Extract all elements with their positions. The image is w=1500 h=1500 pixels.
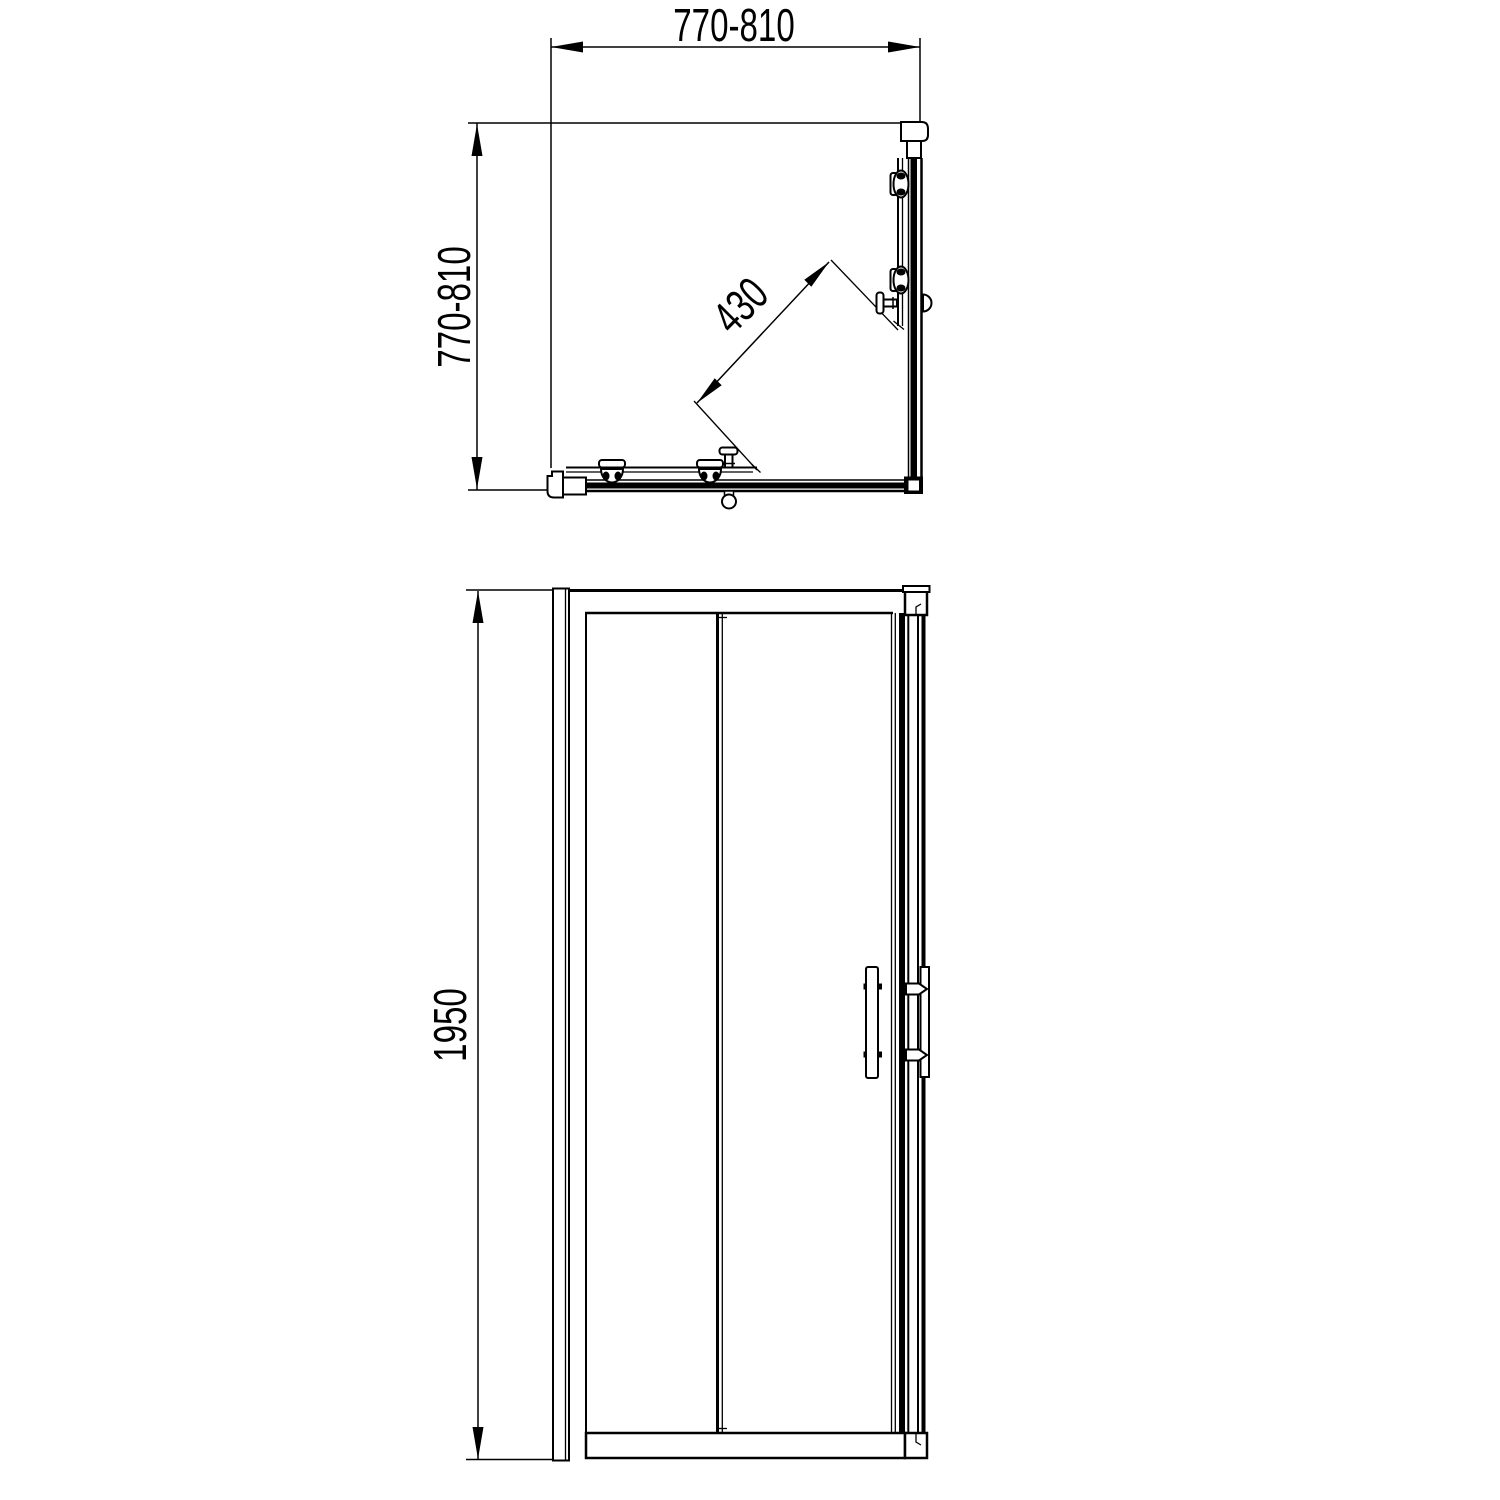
arrow-left-icon [551,42,583,53]
arrow-up-right-icon [804,262,829,287]
door-knob-outside [923,295,932,312]
rail-end-box [563,478,586,495]
drawing-sheet: 770-810 770-810 430 [0,0,1500,1500]
door-knob-outside [722,491,736,509]
elevation-height-label: 1950 [426,988,476,1062]
drawing-canvas: 770-810 770-810 430 [0,0,1500,1500]
arrow-down-left-icon [697,378,722,403]
roller [891,267,909,294]
bottom-rail [586,1433,905,1458]
elevation-view: 1950 [426,586,930,1461]
arrow-up-icon [473,591,484,623]
corner-bracket-top [903,586,930,615]
plan-width-dimension: 770-810 [551,1,920,53]
right-rail [892,592,924,1457]
plan-right-rail [877,122,932,494]
plan-bottom-rail [548,448,907,509]
wall-bracket-top [901,122,928,141]
plan-extension-lines [468,38,920,490]
roller [891,171,909,198]
plan-diagonal-dimension: 430 [694,260,898,470]
plan-view: 770-810 770-810 430 [430,1,932,509]
arrow-right-icon [888,42,920,53]
top-rail [569,591,903,614]
elevation-height-dimension: 1950 [426,590,552,1460]
arrow-down-icon [472,457,483,489]
door-handle [864,967,930,1078]
door-overlap-edge [716,614,727,1432]
wall-bracket-left [548,472,564,498]
door-knob [877,293,898,314]
plan-depth-label: 770-810 [430,246,480,368]
arrow-down-icon [473,1427,484,1459]
wall-profile-left [553,589,569,1461]
plan-width-label: 770-810 [673,1,795,51]
roller [599,460,625,483]
plan-diagonal-label: 430 [704,269,779,344]
roller [697,460,723,483]
arrow-up-icon [472,124,483,156]
handle-bar [866,967,878,1078]
corner-bracket-bottom [905,1433,927,1458]
plan-depth-dimension: 770-810 [430,123,483,490]
